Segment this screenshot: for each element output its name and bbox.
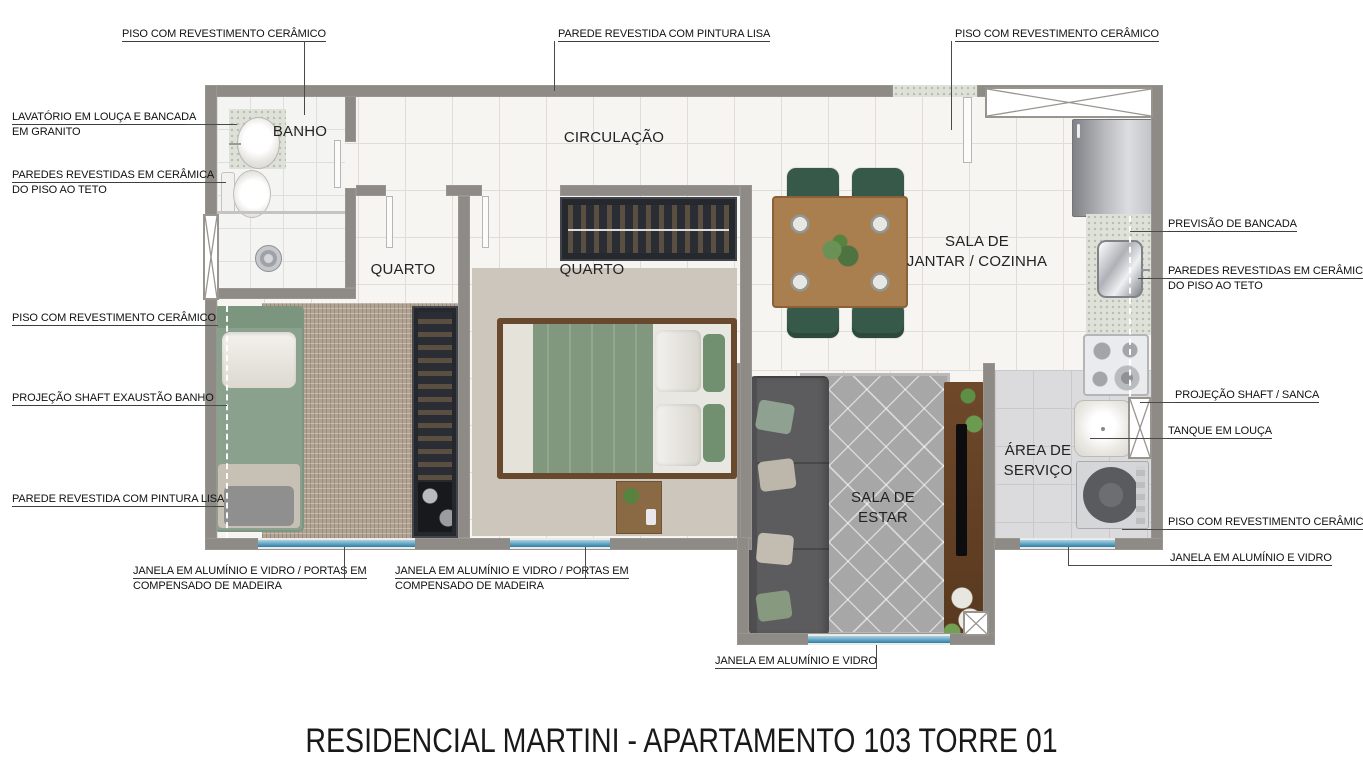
service-shaft-box: [1128, 397, 1152, 459]
entrance-door: [963, 97, 972, 163]
annotation-previsao-bancada: PREVISÃO DE BANCADA: [1168, 217, 1297, 232]
wall-t-cap: [446, 185, 482, 196]
bedroom1-door: [386, 196, 393, 248]
wall-living-right: [983, 363, 995, 645]
bed-pillow: [655, 330, 701, 392]
stove: [1083, 334, 1149, 396]
wall-hall-stub: [356, 185, 386, 196]
wall-bath-east-upper: [345, 96, 356, 142]
leader-line: [1130, 231, 1168, 232]
annotation-janela-portas-2: JANELA EM ALUMÍNIO E VIDRO / PORTAS EMCO…: [395, 564, 629, 593]
counter-projection-dashed-line: [1129, 216, 1131, 396]
floor-plan-canvas: BANHO CIRCULAÇÃO QUARTO QUARTO SALA DE J…: [0, 0, 1363, 767]
bed-pillow: [655, 404, 701, 466]
living-shaft-box: [963, 611, 989, 636]
bathroom-window: [203, 214, 219, 300]
leader-line: [185, 124, 237, 125]
double-bed: [497, 318, 737, 479]
room-label-banho: BANHO: [273, 122, 327, 142]
bed-foot-pillow: [224, 486, 294, 526]
annotation-tanque: TANQUE EM LOUÇA: [1168, 424, 1272, 439]
x-glass-glyph: [1130, 399, 1150, 457]
room-label-quarto2: QUARTO: [560, 260, 625, 280]
annotation-paredes-ceramica-right: PAREDES REVESTIDAS EM CERÂMICADO PISO AO…: [1168, 264, 1363, 293]
annotation-projecao-shaft-banho: PROJEÇÃO SHAFT EXAUSTÃO BANHO: [12, 391, 214, 406]
sofa-pillow: [755, 399, 796, 435]
living-window: [808, 636, 950, 643]
leader-line: [190, 182, 226, 183]
leader-line: [344, 547, 345, 578]
leader-line: [876, 645, 877, 668]
room-label-sala-estar: SALA DE ESTAR: [851, 488, 915, 527]
bed-pillow: [222, 332, 296, 388]
wardrobe-bedroom1: [412, 306, 458, 538]
room-label-circulacao: CIRCULAÇÃO: [564, 128, 664, 148]
service-window: [1020, 540, 1115, 547]
leader-line: [198, 506, 212, 507]
annotation-janela-bottom: JANELA EM ALUMÍNIO E VIDRO: [715, 654, 877, 669]
room-label-area-servico: ÁREA DE SERVIÇO: [1004, 441, 1073, 480]
annotation-parede-pintura-top: PAREDE REVESTIDA COM PINTURA LISA: [558, 27, 770, 42]
annotation-piso-ceramico-left: PISO COM REVESTIMENTO CERÂMICO: [12, 311, 216, 326]
annotation-janela-right: JANELA EM ALUMÍNIO E VIDRO: [1170, 551, 1332, 566]
bedroom2-side-table: [616, 481, 662, 534]
annotation-piso-ceramico-top-right: PISO COM REVESTIMENTO CERÂMICO: [955, 27, 1159, 42]
sofa: [749, 376, 829, 636]
bed-accent-pillow: [703, 404, 725, 462]
leader-line: [1068, 565, 1170, 566]
wall-between-bedrooms: [458, 196, 470, 538]
annotation-lavatorio: LAVATÓRIO EM LOUÇA E BANCADAEM GRANITO: [12, 110, 196, 139]
wall-bath-east-lower: [345, 188, 356, 288]
entrance-threshold: [893, 85, 977, 97]
annotation-parede-pintura-left: PAREDE REVESTIDA COM PINTURA LISA: [12, 492, 224, 507]
laundry-tank: [1074, 400, 1132, 457]
leader-line: [951, 41, 952, 130]
bedroom2-door: [482, 196, 489, 248]
x-glass-glyph: [965, 613, 987, 634]
room-label-sala-jantar: SALA DE JANTAR / COZINHA: [907, 232, 1047, 271]
leader-line: [1090, 438, 1168, 439]
shower-divider: [217, 211, 345, 214]
annotation-janela-portas-1: JANELA EM ALUMÍNIO E VIDRO / PORTAS EMCO…: [133, 564, 367, 593]
bed-sheet: [503, 324, 533, 473]
leader-line: [1140, 402, 1175, 403]
bathroom-door: [334, 140, 341, 188]
shaft-projection-dashed-line: [226, 306, 228, 538]
bedroom1-window: [258, 540, 415, 547]
wall-bedroom2-east: [740, 185, 752, 538]
room-label-quarto1: QUARTO: [371, 260, 436, 280]
x-glass-glyph: [987, 89, 1151, 116]
annotation-piso-ceramico-right: PISO COM REVESTIMENTO CERÂMICO: [1168, 515, 1363, 530]
leader-line: [190, 325, 218, 326]
refrigerator: [1072, 119, 1153, 217]
bed-accent-pillow: [703, 334, 725, 392]
leader-line: [554, 41, 555, 91]
shower-drain: [255, 245, 282, 272]
annotation-paredes-ceramica-left: PAREDES REVESTIDAS EM CERÂMICADO PISO AO…: [12, 168, 214, 197]
wall-right: [1151, 85, 1163, 550]
plan-title: RESIDENCIAL MARTINI - APARTAMENTO 103 TO…: [109, 722, 1254, 761]
sofa-pillow: [757, 458, 796, 492]
washing-machine: [1076, 461, 1149, 529]
bedroom2-window: [510, 540, 610, 547]
sofa-pillow: [756, 532, 794, 565]
wall-bath-south: [205, 288, 356, 299]
leader-line: [1122, 529, 1168, 530]
x-glass-glyph: [205, 216, 217, 298]
tv-stand: [944, 382, 984, 634]
wardrobe-bedroom2: [560, 197, 737, 261]
wall-hall-south: [560, 185, 740, 196]
leader-line: [304, 41, 305, 115]
leader-line: [585, 547, 586, 578]
annotation-piso-ceramico-top-left: PISO COM REVESTIMENTO CERÂMICO: [122, 27, 326, 42]
leader-line: [185, 405, 227, 406]
leader-line: [1068, 547, 1069, 565]
annotation-projecao-shaft-sanca: PROJEÇÃO SHAFT / SANCA: [1175, 388, 1319, 403]
dining-table: [772, 196, 908, 308]
leader-line: [1138, 278, 1168, 279]
wall-top-left: [205, 85, 893, 97]
kitchen-window: [985, 87, 1153, 118]
kitchen-sink: [1097, 240, 1143, 298]
sofa-pillow: [755, 590, 793, 622]
